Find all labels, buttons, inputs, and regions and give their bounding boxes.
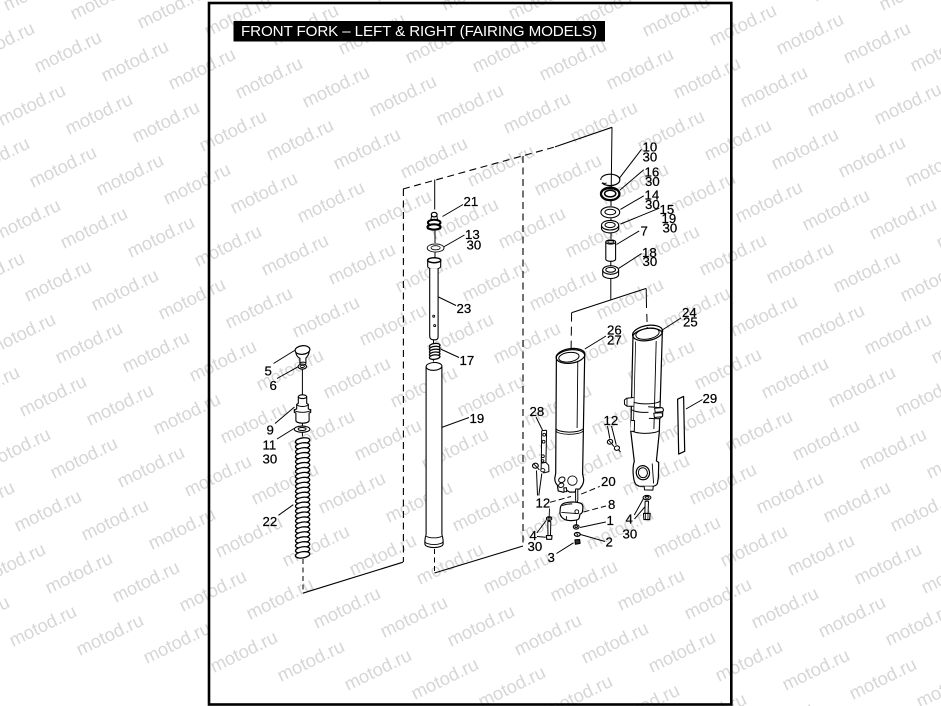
svg-text:motod.ru: motod.ru [464, 140, 538, 191]
svg-text:motod.ru: motod.ru [341, 644, 415, 695]
svg-text:12: 12 [604, 413, 619, 428]
svg-text:23: 23 [457, 301, 472, 316]
svg-text:motod.ru: motod.ru [562, 211, 636, 262]
svg-text:30: 30 [263, 452, 278, 467]
svg-text:motod.ru: motod.ru [325, 238, 399, 289]
svg-text:motod.ru: motod.ru [356, 299, 430, 350]
svg-text:motod.ru: motod.ru [73, 609, 147, 660]
svg-text:motod.ru: motod.ru [732, 176, 806, 227]
svg-text:11: 11 [263, 438, 277, 453]
svg-text:motod.ru: motod.ru [310, 582, 384, 633]
svg-text:motod.ru: motod.ru [392, 246, 466, 297]
svg-text:motod.ru: motod.ru [67, 0, 141, 24]
svg-text:7: 7 [641, 224, 648, 239]
svg-text:motod.ru: motod.ru [804, 70, 878, 121]
svg-text:motod.ru: motod.ru [232, 52, 306, 103]
svg-text:motod.ru: motod.ru [706, 0, 780, 50]
svg-text:motod.ru: motod.ru [351, 414, 425, 465]
svg-text:motod.ru: motod.ru [511, 609, 585, 660]
svg-text:motod.ru: motod.ru [578, 617, 652, 668]
svg-text:30: 30 [643, 254, 658, 269]
svg-text:motod.ru: motod.ru [835, 131, 909, 182]
svg-text:motod.ru: motod.ru [0, 194, 64, 245]
svg-text:30: 30 [645, 197, 660, 212]
svg-text:motod.ru: motod.ru [109, 556, 183, 607]
svg-text:motod.ru: motod.ru [16, 370, 90, 421]
svg-text:3: 3 [548, 550, 555, 565]
svg-text:21: 21 [464, 194, 479, 209]
svg-text:motod.ru: motod.ru [0, 423, 54, 474]
svg-text:motod.ru: motod.ru [42, 547, 116, 598]
svg-text:motod.ru: motod.ru [480, 547, 554, 598]
svg-text:5: 5 [265, 364, 272, 379]
svg-text:20: 20 [601, 474, 616, 489]
svg-text:motod.ru: motod.ru [227, 167, 301, 218]
svg-text:motod.ru: motod.ru [387, 361, 461, 412]
svg-text:28: 28 [530, 404, 545, 419]
svg-text:motod.ru: motod.ru [712, 635, 786, 686]
svg-text:motod.ru: motod.ru [748, 582, 822, 633]
svg-text:motod.ru: motod.ru [217, 397, 291, 448]
svg-text:motod.ru: motod.ru [191, 220, 265, 271]
svg-text:motod.ru: motod.ru [119, 326, 193, 377]
svg-text:motod.ru: motod.ru [444, 600, 518, 651]
svg-text:9: 9 [267, 423, 274, 438]
svg-text:motod.ru: motod.ru [330, 123, 404, 174]
svg-text:motod.ru: motod.ru [820, 476, 894, 527]
svg-text:29: 29 [703, 391, 718, 406]
svg-text:FRONT FORK – LEFT & RIGHT (FAI: FRONT FORK – LEFT & RIGHT (FAIRING MODEL… [241, 23, 597, 40]
svg-text:motod.ru: motod.ru [11, 485, 85, 536]
svg-text:motod.ru: motod.ru [433, 79, 507, 130]
svg-text:motod.ru: motod.ru [289, 291, 363, 342]
svg-text:motod.ru: motod.ru [743, 697, 817, 706]
svg-text:motod.ru: motod.ru [830, 246, 904, 297]
svg-text:motod.ru: motod.ru [408, 653, 482, 704]
svg-text:motod.ru: motod.ru [0, 0, 74, 15]
svg-text:25: 25 [683, 315, 698, 330]
svg-text:motod.ru: motod.ru [78, 494, 152, 545]
svg-text:motod.ru: motod.ru [93, 149, 167, 200]
svg-text:motod.ru: motod.ru [639, 0, 713, 41]
svg-text:motod.ru: motod.ru [531, 149, 605, 200]
svg-text:motod.ru: motod.ru [701, 114, 775, 165]
svg-text:8: 8 [608, 497, 615, 512]
svg-text:motod.ru: motod.ru [140, 617, 214, 668]
svg-text:motod.ru: motod.ru [366, 70, 440, 121]
svg-text:motod.ru: motod.ru [243, 573, 317, 624]
svg-text:motod.ru: motod.ru [603, 43, 677, 94]
svg-text:motod.ru: motod.ru [789, 414, 863, 465]
svg-text:motod.ru: motod.ru [459, 255, 533, 306]
svg-text:motod.ru: motod.ru [263, 114, 337, 165]
svg-text:1: 1 [607, 513, 614, 528]
svg-text:motod.ru: motod.ru [722, 405, 796, 456]
svg-text:motod.ru: motod.ru [57, 202, 131, 253]
svg-text:motod.ru: motod.ru [207, 626, 281, 677]
svg-text:motod.ru: motod.ru [495, 202, 569, 253]
svg-text:motod.ru: motod.ru [129, 96, 203, 147]
svg-text:motod.ru: motod.ru [258, 229, 332, 280]
svg-text:6: 6 [270, 378, 277, 393]
svg-text:motod.ru: motod.ru [691, 343, 765, 394]
svg-text:motod.ru: motod.ru [176, 565, 250, 616]
svg-text:motod.ru: motod.ru [124, 211, 198, 262]
svg-text:motod.ru: motod.ru [0, 79, 69, 130]
svg-text:motod.ru: motod.ru [454, 370, 528, 421]
svg-text:motod.ru: motod.ru [0, 538, 49, 589]
svg-text:4: 4 [626, 512, 633, 527]
svg-text:motod.ru: motod.ru [475, 661, 549, 706]
svg-text:motod.ru: motod.ru [248, 458, 322, 509]
svg-text:motod.ru: motod.ru [21, 255, 95, 306]
svg-text:motod.ru: motod.ru [815, 591, 889, 642]
svg-text:motod.ru: motod.ru [840, 17, 914, 68]
svg-text:motod.ru: motod.ru [773, 8, 847, 59]
svg-text:motod.ru: motod.ru [377, 591, 451, 642]
svg-text:motod.ru: motod.ru [62, 88, 136, 139]
svg-text:motod.ru: motod.ru [753, 467, 827, 518]
svg-text:motod.ru: motod.ru [165, 43, 239, 94]
svg-text:motod.ru: motod.ru [758, 352, 832, 403]
svg-text:motod.ru: motod.ru [346, 529, 420, 580]
svg-text:motod.ru: motod.ru [299, 61, 373, 112]
svg-text:motod.ru: motod.ru [181, 450, 255, 501]
svg-text:motod.ru: motod.ru [593, 273, 667, 324]
svg-text:motod.ru: motod.ru [609, 679, 683, 706]
svg-text:motod.ru: motod.ru [717, 520, 791, 571]
svg-text:motod.ru: motod.ru [0, 308, 59, 359]
svg-text:motod.ru: motod.ru [768, 123, 842, 174]
svg-text:motod.ru: motod.ru [382, 476, 456, 527]
svg-text:motod.ru: motod.ru [809, 0, 883, 6]
svg-text:motod.ru: motod.ru [98, 35, 172, 86]
svg-text:motod.ru: motod.ru [320, 352, 394, 403]
svg-text:motod.ru: motod.ru [186, 335, 260, 386]
svg-text:22: 22 [263, 514, 278, 529]
svg-text:motod.ru: motod.ru [274, 635, 348, 686]
svg-text:motod.ru: motod.ru [681, 573, 755, 624]
svg-text:30: 30 [467, 238, 482, 253]
svg-text:motod.ru: motod.ru [897, 255, 941, 306]
svg-text:motod.ru: motod.ru [536, 34, 610, 85]
svg-text:motod.ru: motod.ru [892, 370, 941, 421]
svg-text:2: 2 [606, 535, 613, 550]
svg-text:motod.ru: motod.ru [31, 26, 105, 77]
svg-text:12: 12 [536, 496, 551, 511]
svg-text:motod.ru: motod.ru [686, 458, 760, 509]
svg-text:motod.ru: motod.ru [727, 290, 801, 341]
svg-text:motod.ru: motod.ru [279, 520, 353, 571]
svg-text:motod.ru: motod.ru [315, 467, 389, 518]
svg-text:motod.ru: motod.ru [114, 441, 188, 492]
svg-text:motod.ru: motod.ru [887, 485, 941, 536]
svg-text:motod.ru: motod.ru [784, 529, 858, 580]
svg-text:motod.ru: motod.ru [799, 184, 873, 235]
svg-text:motod.ru: motod.ru [361, 185, 435, 236]
svg-text:17: 17 [460, 353, 475, 368]
svg-text:motod.ru: motod.ru [547, 555, 621, 606]
svg-text:motod.ru: motod.ru [650, 511, 724, 562]
svg-text:motod.ru: motod.ru [222, 282, 296, 333]
svg-text:motod.ru: motod.ru [825, 361, 899, 412]
svg-text:motod.ru: motod.ru [490, 317, 564, 368]
svg-text:motod.ru: motod.ru [542, 670, 616, 706]
svg-text:motod.ru: motod.ru [500, 87, 574, 138]
svg-text:30: 30 [643, 150, 658, 165]
svg-text:30: 30 [528, 539, 543, 554]
svg-text:motod.ru: motod.ru [846, 653, 920, 704]
svg-text:motod.ru: motod.ru [614, 564, 688, 615]
svg-text:motod.ru: motod.ru [52, 317, 126, 368]
svg-text:motod.ru: motod.ru [794, 299, 868, 350]
svg-text:motod.ru: motod.ru [856, 423, 930, 474]
svg-text:motod.ru: motod.ru [397, 132, 471, 183]
svg-text:motod.ru: motod.ru [871, 78, 941, 129]
svg-text:motod.ru: motod.ru [155, 273, 229, 324]
svg-text:motod.ru: motod.ru [47, 432, 121, 483]
svg-text:motod.ru: motod.ru [134, 0, 208, 33]
svg-text:motod.ru: motod.ru [294, 176, 368, 227]
svg-text:motod.ru: motod.ru [763, 237, 837, 288]
svg-text:motod.ru: motod.ru [645, 626, 719, 677]
svg-text:motod.ru: motod.ru [866, 193, 940, 244]
svg-text:motod.ru: motod.ru [6, 600, 80, 651]
svg-text:motod.ru: motod.ru [861, 308, 935, 359]
svg-text:motod.ru: motod.ru [655, 396, 729, 447]
svg-text:motod.ru: motod.ru [83, 379, 157, 430]
svg-text:motod.ru: motod.ru [449, 485, 523, 536]
svg-text:19: 19 [470, 411, 485, 426]
svg-text:motod.ru: motod.ru [779, 644, 853, 695]
svg-text:motod.ru: motod.ru [26, 141, 100, 192]
svg-text:motod.ru: motod.ru [150, 388, 224, 439]
svg-text:motod.ru: motod.ru [413, 538, 487, 589]
svg-text:motod.ru: motod.ru [88, 264, 162, 315]
svg-text:motod.ru: motod.ru [485, 432, 559, 483]
svg-text:27: 27 [607, 333, 622, 348]
svg-text:motod.ru: motod.ru [851, 538, 925, 589]
svg-text:motod.ru: motod.ru [196, 105, 270, 156]
svg-text:motod.ru: motod.ru [876, 0, 941, 15]
svg-text:motod.ru: motod.ru [160, 158, 234, 209]
svg-text:motod.ru: motod.ru [145, 503, 219, 554]
svg-text:motod.ru: motod.ru [882, 599, 941, 650]
svg-text:30: 30 [663, 221, 678, 236]
svg-text:30: 30 [623, 527, 638, 542]
svg-text:motod.ru: motod.ru [737, 61, 811, 112]
